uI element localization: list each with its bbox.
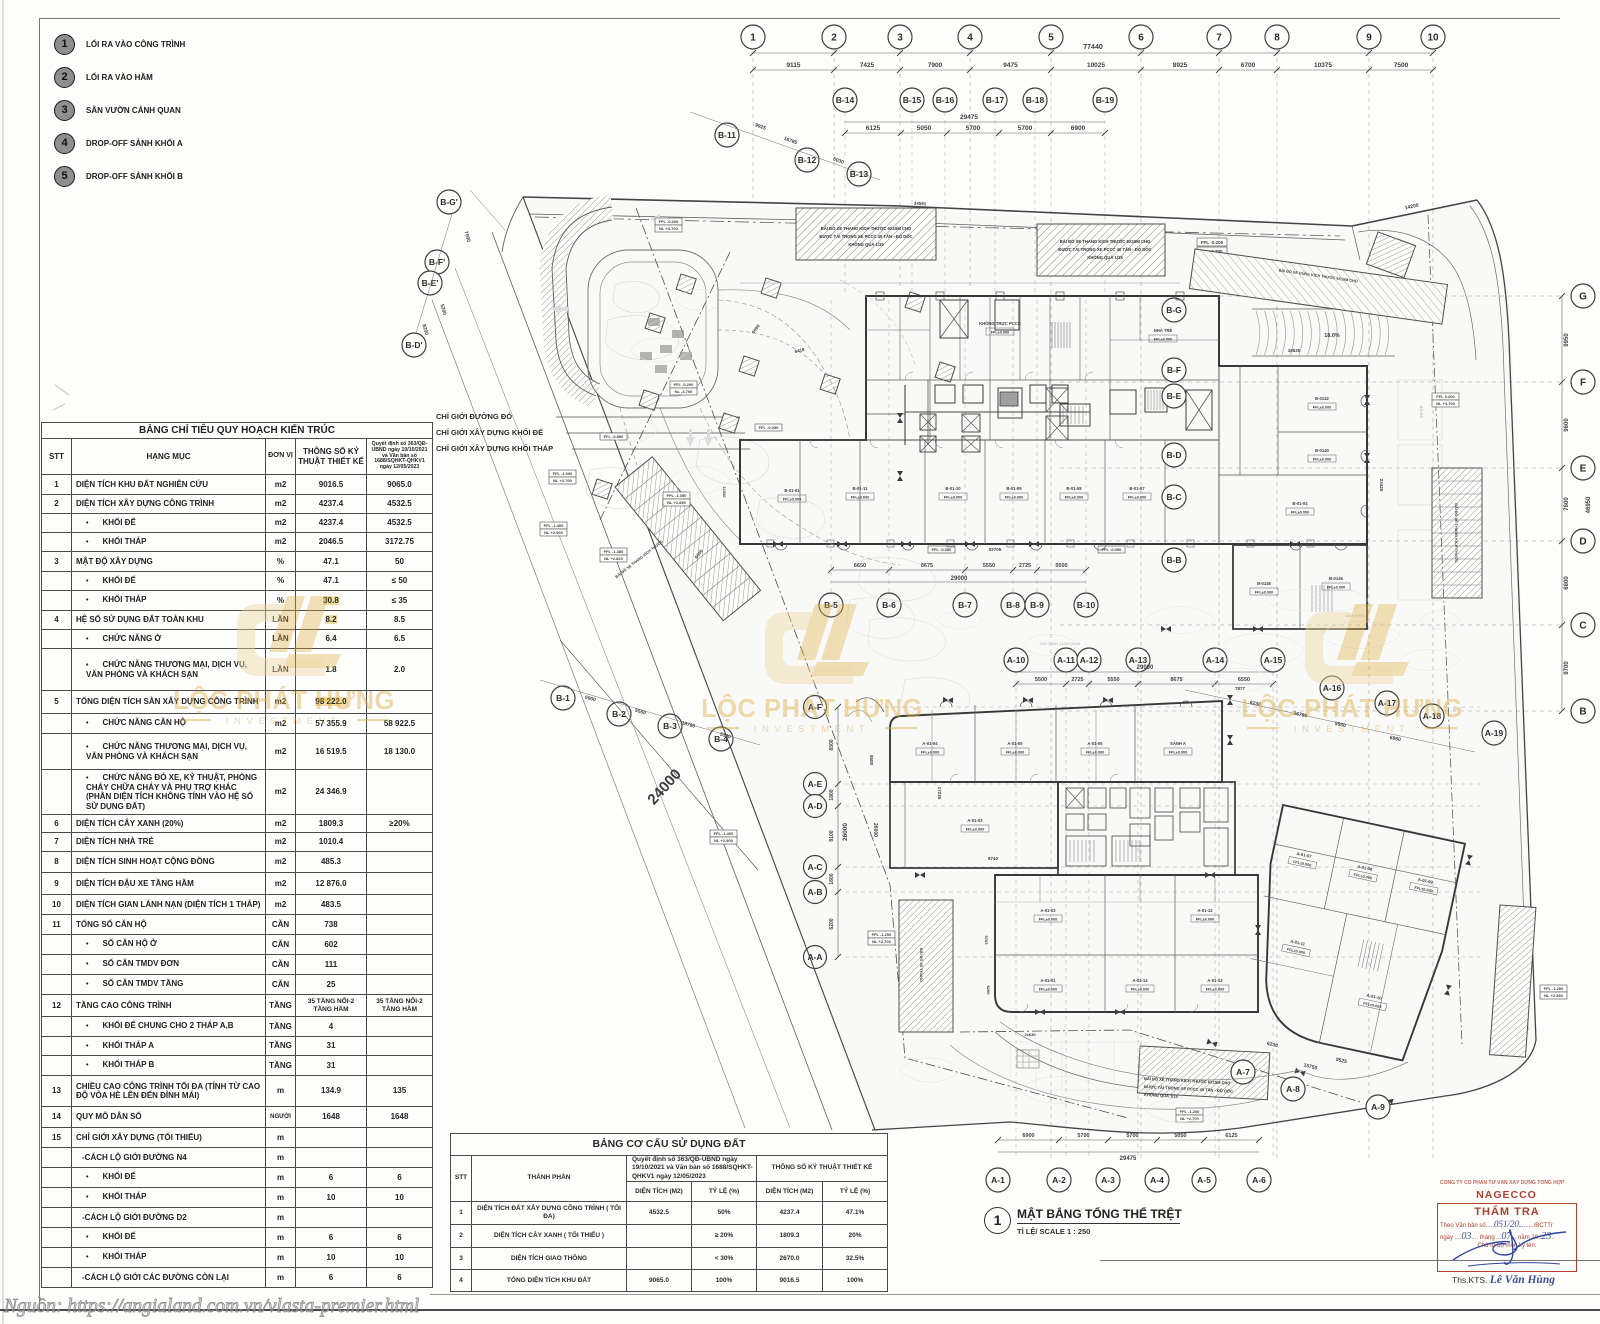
svg-text:77440: 77440 xyxy=(1083,44,1103,51)
svg-text:B-12: B-12 xyxy=(798,155,817,165)
svg-text:10: 10 xyxy=(1427,33,1439,44)
svg-text:10025: 10025 xyxy=(1087,62,1105,69)
svg-text:BÃI ĐỖ XE THANG KÍCH THƯỚC 6X1: BÃI ĐỖ XE THANG KÍCH THƯỚC 6X15M CHỌ xyxy=(821,226,912,231)
svg-text:24000: 24000 xyxy=(644,766,685,808)
svg-text:BÃI ĐỘ: BÃI ĐỘ xyxy=(1419,406,1424,419)
svg-text:A-01-12: A-01-12 xyxy=(1197,908,1213,913)
svg-text:CHỈ GIỚI XÂY DỰNG KHỐI ĐẾ: CHỈ GIỚI XÂY DỰNG KHỐI ĐẾ xyxy=(436,427,543,437)
svg-text:FFL±0.000: FFL±0.000 xyxy=(944,496,963,500)
svg-text:6: 6 xyxy=(1138,33,1144,44)
svg-text:NHÀ TRẺ: NHÀ TRẺ xyxy=(1154,328,1173,333)
svg-text:B-1: B-1 xyxy=(556,693,570,703)
svg-text:FFL -1.400: FFL -1.400 xyxy=(544,523,564,528)
svg-text:SẢNH A: SẢNH A xyxy=(1170,741,1186,746)
svg-text:NL +2.350: NL +2.350 xyxy=(1544,993,1563,998)
svg-text:9475: 9475 xyxy=(1003,62,1018,69)
svg-text:NL +3.700: NL +3.700 xyxy=(1436,401,1455,406)
svg-text:B-E: B-E xyxy=(1167,391,1182,401)
svg-text:FFL±0.000: FFL±0.000 xyxy=(1128,496,1147,500)
svg-text:FFL±0.000: FFL±0.000 xyxy=(1039,918,1058,922)
svg-text:A-4: A-4 xyxy=(1150,1175,1164,1185)
svg-text:FFL±0.000: FFL±0.000 xyxy=(1065,496,1084,500)
svg-text:FFL±0.000: FFL±0.000 xyxy=(1196,918,1215,922)
svg-text:5700: 5700 xyxy=(1077,1133,1089,1139)
svg-text:FFL±0.000: FFL±0.000 xyxy=(1005,496,1024,500)
svg-text:14200: 14200 xyxy=(1404,203,1419,212)
svg-text:FFL±0.000: FFL±0.000 xyxy=(1313,458,1332,462)
svg-text:6700: 6700 xyxy=(1241,62,1256,69)
svg-text:NL +2.820: NL +2.820 xyxy=(604,556,623,561)
svg-text:9: 9 xyxy=(1366,33,1372,44)
svg-text:34591: 34591 xyxy=(914,201,927,206)
svg-text:A-01-03: A-01-03 xyxy=(967,818,983,823)
svg-text:FFL±0.000: FFL±0.000 xyxy=(1255,591,1274,595)
svg-text:7000: 7000 xyxy=(463,231,472,244)
svg-text:FFL±0.000: FFL±0.000 xyxy=(991,331,1010,335)
svg-text:A-01-06: A-01-06 xyxy=(1087,741,1103,746)
svg-text:16785: 16785 xyxy=(783,136,798,146)
svg-text:G: G xyxy=(1579,292,1587,303)
svg-text:F: F xyxy=(1580,378,1586,389)
svg-text:INVESTMENT: INVESTMENT xyxy=(754,724,870,735)
svg-text:2: 2 xyxy=(831,33,837,44)
svg-text:FFL -1.400: FFL -1.400 xyxy=(714,831,734,836)
svg-text:B-D: B-D xyxy=(1166,450,1181,460)
svg-text:B-0142: B-0142 xyxy=(1315,396,1329,401)
svg-text:ĐƯỢC TẢI TRỌNG XE PCCC 40 TẤN: ĐƯỢC TẢI TRỌNG XE PCCC 40 TẤN - ĐỘ DỐC xyxy=(1058,247,1151,252)
svg-text:B-01-08: B-01-08 xyxy=(1066,486,1082,491)
svg-text:3: 3 xyxy=(897,33,903,44)
svg-text:B-01-11: B-01-11 xyxy=(853,486,869,491)
svg-text:9950: 9950 xyxy=(1564,333,1570,347)
svg-text:B-11: B-11 xyxy=(718,130,736,140)
svg-text:B-G: B-G xyxy=(1166,305,1182,315)
svg-text:NL +3.700: NL +3.700 xyxy=(659,226,678,231)
svg-text:A-3: A-3 xyxy=(1101,1175,1115,1185)
svg-text:B-14: B-14 xyxy=(836,95,855,105)
svg-text:FFL -0.200: FFL -0.200 xyxy=(674,382,694,387)
svg-text:FFL±0.000: FFL±0.000 xyxy=(783,498,802,502)
svg-text:8500: 8500 xyxy=(869,755,874,766)
svg-text:A-9: A-9 xyxy=(1371,1102,1385,1112)
svg-text:FFL -1.200: FFL -1.200 xyxy=(1180,1109,1200,1114)
svg-text:5050: 5050 xyxy=(1174,1133,1186,1139)
svg-text:INVESTMENT: INVESTMENT xyxy=(1294,724,1410,735)
svg-text:B: B xyxy=(1579,707,1586,718)
svg-text:NL -3.700: NL -3.700 xyxy=(675,389,693,394)
svg-text:B-3: B-3 xyxy=(663,721,677,731)
svg-text:9740: 9740 xyxy=(988,856,999,861)
svg-text:FFL -0.200: FFL -0.200 xyxy=(1201,240,1224,245)
svg-text:46950: 46950 xyxy=(1586,496,1592,513)
svg-text:A-01-04: A-01-04 xyxy=(922,741,938,746)
svg-text:FFL±0.000: FFL±0.000 xyxy=(1327,586,1346,590)
svg-text:B-F: B-F xyxy=(1167,365,1181,375)
svg-text:D: D xyxy=(1579,537,1586,548)
svg-text:LỘC PHÁT HƯNG: LỘC PHÁT HƯNG xyxy=(701,693,923,723)
svg-text:B-15: B-15 xyxy=(903,95,922,105)
svg-text:FFL -1.000: FFL -1.000 xyxy=(553,471,573,476)
svg-text:FFL±0.000: FFL±0.000 xyxy=(1206,988,1225,992)
svg-text:A-01-01: A-01-01 xyxy=(1040,978,1056,983)
svg-text:B-01-10: B-01-10 xyxy=(945,486,961,491)
svg-text:9115: 9115 xyxy=(786,62,800,69)
svg-text:18.0%: 18.0% xyxy=(1324,333,1340,339)
svg-text:6125: 6125 xyxy=(866,125,881,132)
svg-text:1: 1 xyxy=(750,33,756,44)
svg-text:NL +2.700: NL +2.700 xyxy=(872,939,891,944)
svg-text:A-6: A-6 xyxy=(1252,1175,1266,1185)
svg-text:NL +2.700: NL +2.700 xyxy=(553,478,572,483)
svg-text:11530: 11530 xyxy=(722,487,727,499)
svg-text:7: 7 xyxy=(1216,33,1222,44)
svg-text:7877: 7877 xyxy=(1235,686,1246,691)
svg-text:FFL±0.000: FFL±0.000 xyxy=(1313,406,1332,410)
svg-text:B-16: B-16 xyxy=(936,95,955,105)
svg-text:6900: 6900 xyxy=(1022,1133,1034,1139)
svg-text:5050: 5050 xyxy=(917,125,932,132)
svg-text:B-18: B-18 xyxy=(1026,95,1045,105)
svg-text:A-2: A-2 xyxy=(1052,1175,1066,1185)
svg-text:C: C xyxy=(1579,621,1586,632)
svg-text:FFL±0.000: FFL±0.000 xyxy=(1154,338,1173,342)
svg-text:B-01-01: B-01-01 xyxy=(784,488,800,493)
svg-text:9925: 9925 xyxy=(754,122,767,132)
svg-text:5: 5 xyxy=(1048,33,1054,44)
svg-text:A-01-14: A-01-14 xyxy=(1132,978,1148,983)
svg-text:B-D': B-D' xyxy=(405,340,422,350)
svg-text:5700: 5700 xyxy=(1126,1133,1138,1139)
svg-text:8925: 8925 xyxy=(1173,62,1188,69)
svg-text:A-01-05: A-01-05 xyxy=(1007,741,1023,746)
svg-text:B-17: B-17 xyxy=(986,95,1005,105)
svg-text:18780: 18780 xyxy=(681,720,696,730)
svg-text:B-01-04: B-01-04 xyxy=(1292,501,1308,506)
svg-text:17235: 17235 xyxy=(937,787,942,800)
svg-text:BÃI ĐỖ XE THANG KÍCH THƯỚC: BÃI ĐỖ XE THANG KÍCH THƯỚC xyxy=(1454,503,1459,563)
svg-text:29475: 29475 xyxy=(960,114,978,121)
svg-text:FFL -1.050: FFL -1.050 xyxy=(667,493,687,498)
svg-text:7500: 7500 xyxy=(1394,62,1409,69)
svg-text:FFL±0.000: FFL±0.000 xyxy=(1039,988,1058,992)
svg-text:E: E xyxy=(1580,464,1587,475)
svg-text:26000: 26000 xyxy=(872,823,878,837)
svg-text:FFL -1.200: FFL -1.200 xyxy=(1544,986,1564,991)
svg-text:FFL±0.000: FFL±0.000 xyxy=(1169,751,1188,755)
svg-text:2x630: 2x630 xyxy=(1024,1032,1036,1037)
svg-text:A-01-13: A-01-13 xyxy=(1207,978,1223,983)
svg-text:ĐƯỢC TẢI TRỌNG XE PCCC 40 TẤN: ĐƯỢC TẢI TRỌNG XE PCCC 40 TẤN - ĐỘ DỐC xyxy=(819,234,912,239)
svg-text:B-0146: B-0146 xyxy=(1257,581,1271,586)
svg-text:7900: 7900 xyxy=(928,62,943,69)
svg-text:B-13: B-13 xyxy=(850,169,869,179)
svg-text:KHÔNG QUÁ 1/15: KHÔNG QUÁ 1/15 xyxy=(1087,255,1123,260)
svg-text:5700: 5700 xyxy=(1018,125,1033,132)
svg-text:FFL -1.200: FFL -1.200 xyxy=(872,932,892,937)
svg-text:4: 4 xyxy=(967,33,973,44)
svg-text:FFL -1.380: FFL -1.380 xyxy=(604,549,624,554)
svg-text:FFL 3.200: FFL 3.200 xyxy=(1436,394,1455,399)
svg-text:FFL -0.050: FFL -0.050 xyxy=(759,425,779,430)
svg-text:INVESTMENT: INVESTMENT xyxy=(226,716,342,727)
svg-text:B-01-07: B-01-07 xyxy=(1129,486,1145,491)
svg-text:BÃI ĐỖ XE THANG KÍCH THƯỚC 6X1: BÃI ĐỖ XE THANG KÍCH THƯỚC 6X15M CHỌ xyxy=(1060,239,1151,244)
svg-text:5703: 5703 xyxy=(984,936,989,946)
svg-text:B-G': B-G' xyxy=(440,197,458,207)
svg-text:NL +2.700: NL +2.700 xyxy=(1180,1116,1199,1121)
svg-text:KHÔNG QUÁ 1/15: KHÔNG QUÁ 1/15 xyxy=(848,242,884,247)
svg-text:10375: 10375 xyxy=(1314,62,1332,69)
svg-text:5200: 5200 xyxy=(439,304,448,317)
svg-text:FFL±0.000: FFL±0.000 xyxy=(1291,511,1310,515)
svg-text:LỘC PHÁT HƯNG: LỘC PHÁT HƯNG xyxy=(173,685,395,715)
svg-text:FFL -0.200: FFL -0.200 xyxy=(659,219,679,224)
svg-text:8: 8 xyxy=(1274,33,1280,44)
svg-text:LỘC PHÁT HƯNG: LỘC PHÁT HƯNG xyxy=(1241,693,1463,723)
svg-text:NL +2.900: NL +2.900 xyxy=(544,530,563,535)
svg-text:FFL±0.000: FFL±0.000 xyxy=(1131,988,1150,992)
svg-text:CHỈ GIỚI ĐƯỜNG ĐỎ: CHỈ GIỚI ĐƯỜNG ĐỎ xyxy=(436,412,512,421)
svg-text:A-5: A-5 xyxy=(1197,1175,1211,1185)
svg-text:B-F': B-F' xyxy=(429,257,445,267)
svg-text:29475: 29475 xyxy=(1120,1156,1137,1162)
svg-text:BÃI ĐỖ XE THANG: BÃI ĐỖ XE THANG xyxy=(919,948,924,982)
svg-text:FFL±0.000: FFL±0.000 xyxy=(851,496,870,500)
svg-text:A-1: A-1 xyxy=(991,1175,1005,1185)
svg-text:FFL±0.000: FFL±0.000 xyxy=(921,751,940,755)
svg-text:B-0140: B-0140 xyxy=(1315,448,1329,453)
svg-text:5550: 5550 xyxy=(634,708,647,717)
svg-text:NL +2.850: NL +2.850 xyxy=(667,500,686,505)
svg-text:B-01-09: B-01-09 xyxy=(1006,486,1022,491)
svg-text:B-C: B-C xyxy=(1166,492,1181,502)
svg-text:5700: 5700 xyxy=(966,125,981,132)
svg-text:9600: 9600 xyxy=(1564,418,1570,432)
svg-text:6800: 6800 xyxy=(1564,576,1570,590)
svg-text:FFL±0.000: FFL±0.000 xyxy=(1086,751,1105,755)
svg-text:6200: 6200 xyxy=(986,986,991,996)
svg-text:B-19: B-19 xyxy=(1096,95,1115,105)
svg-text:A-7: A-7 xyxy=(1236,1067,1250,1077)
svg-text:A-01-02: A-01-02 xyxy=(1040,908,1056,913)
svg-text:CHỈ GIỚI XÂY DỰNG KHỐI THÁP: CHỈ GIỚI XÂY DỰNG KHỐI THÁP xyxy=(436,443,553,453)
svg-text:KHÔNG TRỰC PCCC: KHÔNG TRỰC PCCC xyxy=(979,321,1021,326)
svg-text:CÂY XANH CẢNH QUAN: CÂY XANH CẢNH QUAN xyxy=(1040,641,1081,646)
svg-text:16535: 16535 xyxy=(1288,348,1301,353)
svg-text:9700: 9700 xyxy=(1564,661,1570,675)
svg-text:B-B: B-B xyxy=(1166,555,1181,565)
svg-text:6125: 6125 xyxy=(1225,1133,1237,1139)
svg-text:FFL±0.000: FFL±0.000 xyxy=(966,828,985,832)
svg-text:B-0145: B-0145 xyxy=(1329,576,1343,581)
svg-text:23425: 23425 xyxy=(1379,479,1384,492)
svg-text:NL +2.900: NL +2.900 xyxy=(714,838,733,843)
svg-text:A-8: A-8 xyxy=(1286,1084,1300,1094)
svg-text:8200: 8200 xyxy=(421,324,430,337)
svg-text:7425: 7425 xyxy=(860,62,875,69)
svg-text:FFL±0.000: FFL±0.000 xyxy=(1006,751,1025,755)
svg-text:7600: 7600 xyxy=(1564,497,1570,511)
svg-text:6900: 6900 xyxy=(1071,125,1086,132)
